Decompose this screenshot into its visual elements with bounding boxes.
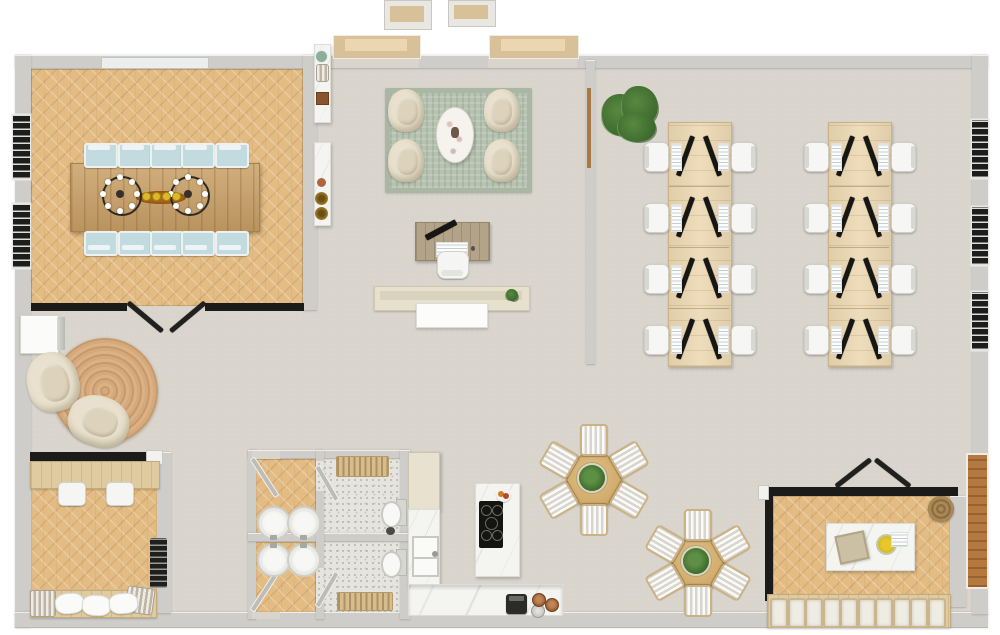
- desk-seam: [669, 308, 729, 309]
- washroom-radiator-top: [336, 456, 389, 477]
- entry-stool: [875, 598, 893, 628]
- sink-faucet: [300, 535, 307, 540]
- office-desk-papers: [718, 204, 729, 232]
- conference-chair: [215, 231, 249, 256]
- dining-chair: [684, 585, 712, 617]
- entry-stool: [910, 598, 928, 628]
- office-chair: [731, 142, 756, 172]
- office-desk-papers: [831, 143, 842, 171]
- study-chair-1: [58, 482, 86, 506]
- window: [972, 207, 988, 265]
- chandelier-bulb: [134, 191, 140, 197]
- centerpiece-flower: [162, 192, 171, 201]
- dining-chair: [580, 424, 608, 456]
- bench-pillow: [81, 594, 111, 616]
- chandelier-bulb: [185, 208, 191, 214]
- conference-chair: [84, 143, 118, 168]
- meeting-decor-box: [834, 530, 869, 565]
- reception-counter-front: [416, 303, 488, 328]
- meeting-glass-wall-top: [765, 487, 958, 496]
- meeting-glass-wall-left: [765, 487, 773, 601]
- floor-plan: [0, 0, 1000, 635]
- desk-seam: [829, 308, 889, 309]
- lounge-armchair-br: [484, 139, 520, 182]
- chair-backrest: [185, 245, 207, 250]
- chair-backrest: [219, 145, 241, 150]
- armchair-cushion: [396, 147, 418, 175]
- conference-chair: [118, 143, 152, 168]
- chair-backrest: [645, 268, 649, 290]
- centerpiece-flower: [172, 192, 181, 201]
- toilet-bowl-top: [381, 501, 402, 528]
- chair-backrest: [185, 145, 207, 150]
- entry-stool: [893, 598, 911, 628]
- toilet-bin-top: [386, 527, 395, 535]
- entry-stool: [770, 598, 788, 628]
- conference-chair: [181, 231, 215, 256]
- toilet-bowl-bottom: [381, 551, 402, 578]
- office-desk-papers: [831, 326, 842, 354]
- washroom-sink: [257, 543, 291, 577]
- study-glass-wall: [30, 452, 148, 461]
- sink-faucet: [270, 535, 277, 540]
- chair-backrest: [645, 146, 649, 168]
- console-wood-box: [316, 92, 329, 105]
- console-ribbed-vase: [316, 64, 329, 82]
- office-chair: [644, 142, 669, 172]
- study-chair-2: [106, 482, 134, 506]
- office-desk-papers: [878, 204, 889, 232]
- office-chair: [804, 264, 829, 294]
- office-desk-papers: [718, 143, 729, 171]
- office-desk-papers: [718, 326, 729, 354]
- chandelier-bulb: [197, 203, 203, 209]
- divider-wood-slider: [587, 88, 591, 168]
- chandelier-bulb: [185, 174, 191, 180]
- window: [972, 292, 988, 350]
- chandelier-bulb: [105, 179, 111, 185]
- desk-seam: [669, 186, 729, 187]
- chair-backrest: [154, 245, 176, 250]
- sink-faucet: [300, 543, 307, 548]
- chair-backrest: [805, 268, 809, 290]
- bench-pillow: [108, 592, 138, 615]
- kitchen-faucet: [432, 551, 438, 557]
- chandelier-bulb: [105, 203, 111, 209]
- chair-backrest: [911, 268, 915, 290]
- lounge-armchair-tl: [388, 89, 424, 132]
- meeting-notepad: [891, 532, 908, 547]
- office-chair: [804, 325, 829, 355]
- kitchen-sink-basin-2: [412, 557, 439, 577]
- office-desk-papers: [671, 326, 682, 354]
- office-desk-papers: [718, 265, 729, 293]
- chair-backrest: [911, 146, 915, 168]
- centerpiece-flower: [142, 192, 151, 201]
- office-chair: [891, 325, 916, 355]
- office-chair: [804, 203, 829, 233]
- coffee-machine-top: [509, 596, 524, 601]
- office-chair: [644, 203, 669, 233]
- chair-backrest: [805, 146, 809, 168]
- entry-stool: [858, 598, 876, 628]
- chair-backrest: [154, 145, 176, 150]
- meeting-wall-cap: [758, 485, 769, 500]
- island-fruit-plate: [496, 487, 511, 502]
- dining-chair: [580, 504, 608, 536]
- nook-cabinet-side: [57, 317, 65, 350]
- cooktop-burner: [485, 517, 498, 530]
- study-stove: [150, 538, 167, 588]
- vestibule-left-step: [390, 6, 424, 22]
- coffee-machine: [506, 594, 527, 614]
- nook-cabinet: [20, 315, 59, 354]
- cooktop-burner: [492, 530, 503, 541]
- office-chair: [644, 264, 669, 294]
- chair-backrest: [122, 245, 144, 250]
- console-brass-dish-1: [315, 192, 328, 205]
- chair-backrest: [751, 268, 755, 290]
- entry-stool: [823, 598, 841, 628]
- chair-backrest: [805, 207, 809, 229]
- chandelier-bulb: [202, 191, 208, 197]
- entry-stool: [788, 598, 806, 628]
- meeting-basket: [928, 496, 954, 522]
- armchair-cushion: [490, 97, 512, 125]
- chandelier-bulb: [117, 208, 123, 214]
- armchair-cushion: [396, 97, 418, 125]
- chair-backrest: [805, 329, 809, 351]
- window: [13, 115, 30, 179]
- reception-mouse: [471, 246, 475, 251]
- chandelier-bulb: [197, 179, 203, 185]
- chandelier-bulb: [173, 203, 179, 209]
- office-chair: [804, 142, 829, 172]
- coffee-cup: [532, 593, 546, 607]
- lounge-armchair-bl: [388, 139, 424, 182]
- chair-backrest: [751, 207, 755, 229]
- cooktop-burner: [481, 505, 492, 516]
- chandelier-bulb: [100, 191, 106, 197]
- conference-transom-window: [101, 57, 209, 69]
- sink-faucet: [270, 543, 277, 548]
- washroom-sink: [287, 543, 321, 577]
- vestibule-right-step: [454, 5, 488, 19]
- study-basket-left: [30, 590, 56, 617]
- office-chair: [891, 264, 916, 294]
- centerpiece-flower: [152, 192, 161, 201]
- conference-chair: [181, 143, 215, 168]
- armchair-cushion: [490, 147, 512, 175]
- office-desk-papers: [671, 265, 682, 293]
- reception-plant: [506, 289, 518, 301]
- conference-glass-wall-right: [205, 303, 304, 311]
- coffee-cup: [545, 598, 559, 612]
- armchair-cushion: [35, 361, 73, 405]
- office-chair: [731, 325, 756, 355]
- chair-backrest: [645, 207, 649, 229]
- office-chair: [731, 264, 756, 294]
- chair-backrest: [219, 245, 241, 250]
- washroom-radiator-bottom: [337, 592, 393, 611]
- chandelier-bulb: [129, 203, 135, 209]
- office-chair: [891, 142, 916, 172]
- conference-chair: [150, 143, 184, 168]
- office-desk-papers: [831, 265, 842, 293]
- chair-backrest: [441, 270, 463, 276]
- dining-table-planter: [579, 465, 605, 491]
- dining-table-planter: [683, 548, 709, 574]
- chair-backrest: [645, 329, 649, 351]
- console-terracotta-pot: [317, 178, 326, 187]
- cooktop-burner: [492, 505, 503, 516]
- washroom-sink: [257, 506, 291, 540]
- chandelier-bulb: [173, 179, 179, 185]
- conference-chair: [84, 231, 118, 256]
- meeting-wood-door: [966, 453, 989, 589]
- armchair-cushion: [78, 401, 122, 441]
- chandelier-bulb: [129, 179, 135, 185]
- office-desk-papers: [831, 204, 842, 232]
- lounge-armchair-tr: [484, 89, 520, 132]
- reception-counter-shelf: [380, 291, 522, 300]
- entry-step-left-tread: [345, 39, 407, 51]
- chandelier-hub: [184, 190, 192, 198]
- office-desk-papers: [878, 326, 889, 354]
- office-plant-blob-3: [618, 112, 656, 142]
- study-desk: [30, 461, 160, 489]
- console-plate-green: [315, 50, 328, 63]
- office-chair: [644, 325, 669, 355]
- chair-backrest: [751, 329, 755, 351]
- office-chair: [731, 203, 756, 233]
- office-desk-papers: [878, 265, 889, 293]
- desk-seam: [829, 247, 889, 248]
- entry-stool: [928, 598, 946, 628]
- coffee-table-decor: [451, 127, 459, 138]
- conference-chair: [215, 143, 249, 168]
- window: [13, 204, 30, 268]
- chair-backrest: [122, 145, 144, 150]
- chair-backrest: [88, 145, 110, 150]
- fruit-red: [503, 493, 509, 499]
- window: [972, 120, 988, 178]
- entry-step-right-tread: [501, 39, 565, 51]
- office-desk-papers: [671, 143, 682, 171]
- conference-chair: [118, 231, 152, 256]
- entry-stool: [805, 598, 823, 628]
- chair-backrest: [911, 207, 915, 229]
- entry-stool: [840, 598, 858, 628]
- dining-chair: [684, 509, 712, 541]
- chair-backrest: [88, 245, 110, 250]
- desk-seam: [669, 247, 729, 248]
- office-desk-papers: [878, 143, 889, 171]
- reception-chair: [437, 251, 469, 279]
- conference-chair: [150, 231, 184, 256]
- cooktop-burner: [481, 530, 492, 541]
- office-desk-papers: [671, 204, 682, 232]
- chandelier-hub: [116, 190, 124, 198]
- desk-seam: [829, 186, 889, 187]
- office-chair: [891, 203, 916, 233]
- washroom-door-gap-top: [252, 451, 280, 459]
- kitchen-tall-cabinet: [408, 452, 440, 511]
- chandelier-bulb: [117, 174, 123, 180]
- washroom-sink: [287, 506, 321, 540]
- chair-backrest: [751, 146, 755, 168]
- console-brass-dish-2: [315, 207, 328, 220]
- conference-glass-wall-left: [31, 303, 127, 311]
- washroom-door-gap-bottom: [252, 612, 280, 619]
- chair-backrest: [911, 329, 915, 351]
